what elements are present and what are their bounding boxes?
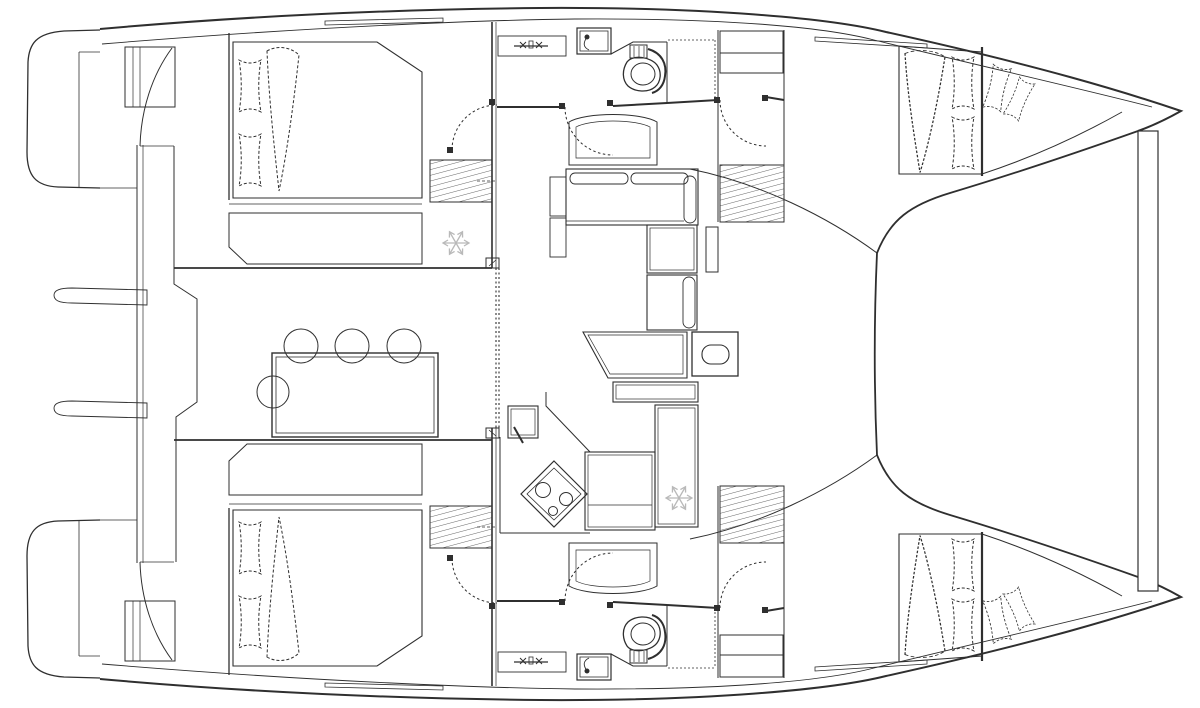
corridor-port-stop-1 xyxy=(714,97,720,103)
fwd-port-wardrobe xyxy=(720,165,784,222)
bath-stbd-door-stop-2 xyxy=(607,602,613,608)
bath-stbd-door-stop-1 xyxy=(559,599,565,605)
fwd-stbd-wardrobe xyxy=(720,486,784,543)
aft-stbd-door-stop-1 xyxy=(447,555,453,561)
aft-stbd-door-stop-2 xyxy=(489,603,495,609)
floorplan-page: catamaran-layout-plan xyxy=(0,0,1200,708)
aft-port-door-stop-1 xyxy=(447,147,453,153)
corridor-port-stop-2 xyxy=(762,95,768,101)
aft-port-door-stop-2 xyxy=(489,99,495,105)
bath-port-door-stop-2 xyxy=(607,100,613,106)
corridor-stbd-stop-2 xyxy=(762,607,768,613)
bath-port-door-stop-1 xyxy=(559,103,565,109)
catamaran-floorplan xyxy=(0,0,1200,708)
corridor-stbd-stop-1 xyxy=(714,605,720,611)
plan-background xyxy=(0,0,1200,708)
fwd-crossbeam xyxy=(1138,131,1158,591)
